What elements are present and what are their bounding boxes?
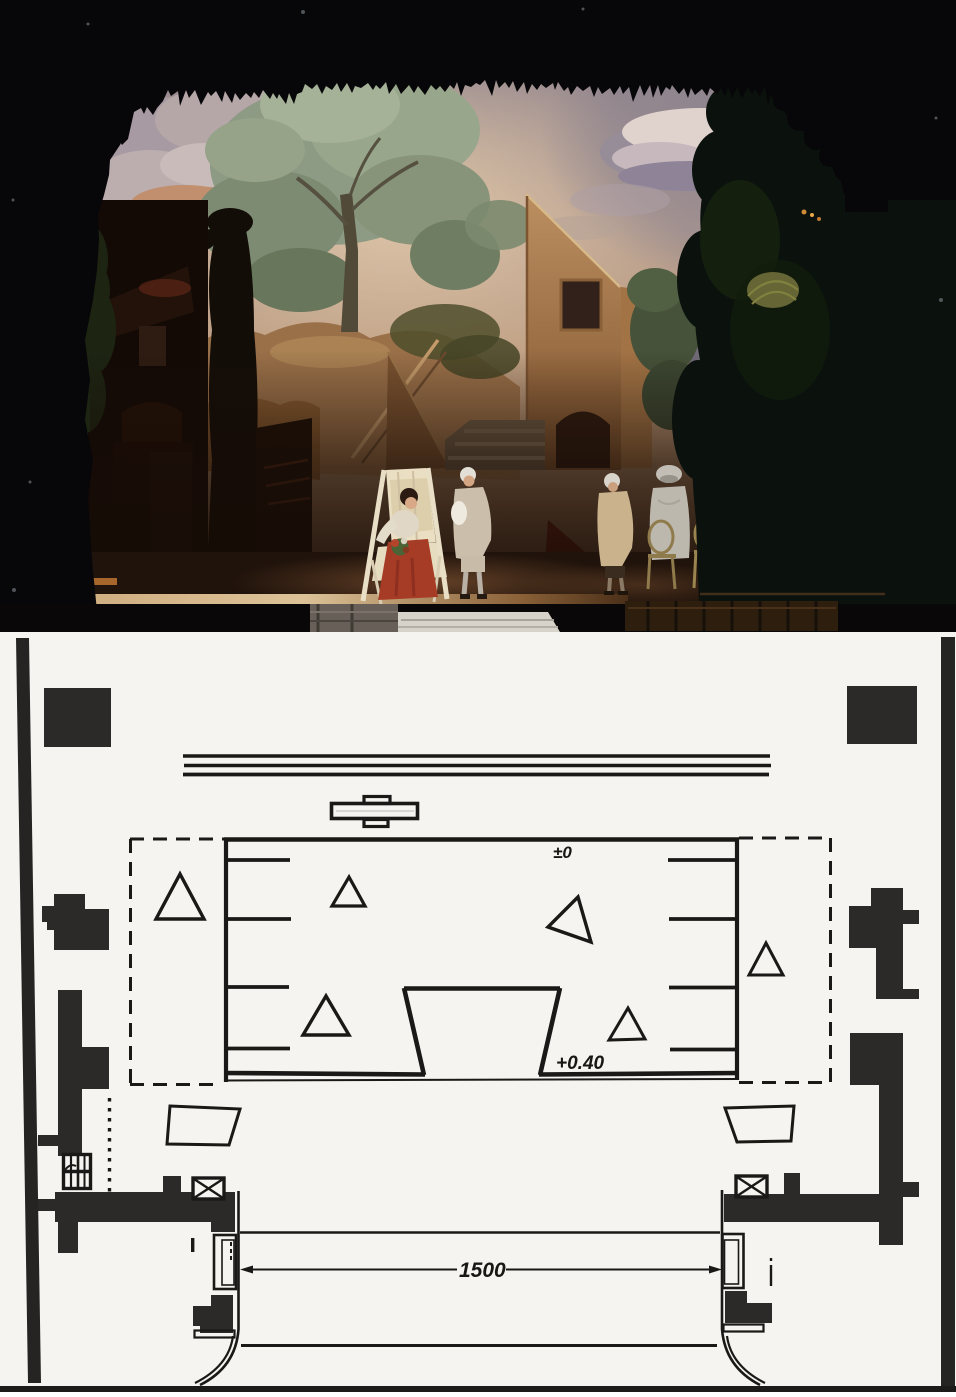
- svg-text:±0: ±0: [553, 843, 572, 862]
- svg-text:1500: 1500: [459, 1259, 506, 1282]
- svg-text:+0.40: +0.40: [556, 1053, 605, 1074]
